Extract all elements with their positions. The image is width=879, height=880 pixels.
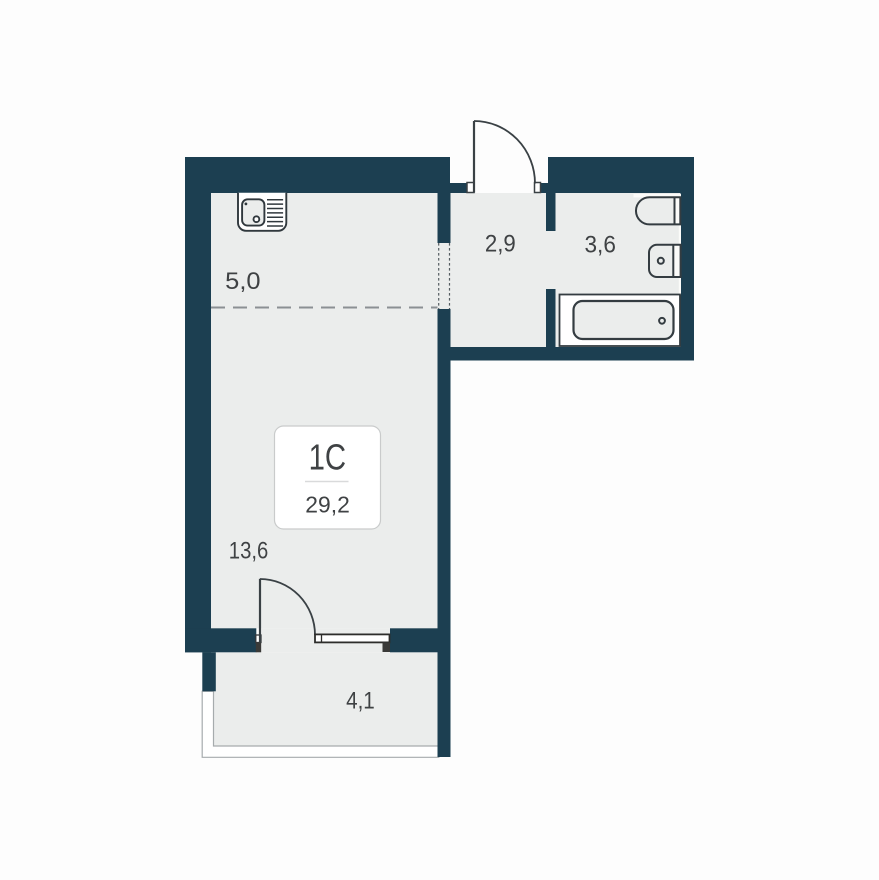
- svg-text:1C: 1C: [309, 436, 347, 477]
- svg-text:3,6: 3,6: [585, 232, 616, 259]
- svg-text:2,9: 2,9: [485, 231, 516, 258]
- svg-text:4,1: 4,1: [346, 688, 375, 715]
- svg-text:13,6: 13,6: [229, 538, 268, 565]
- svg-text:5,0: 5,0: [225, 268, 260, 295]
- svg-text:29,2: 29,2: [305, 492, 350, 518]
